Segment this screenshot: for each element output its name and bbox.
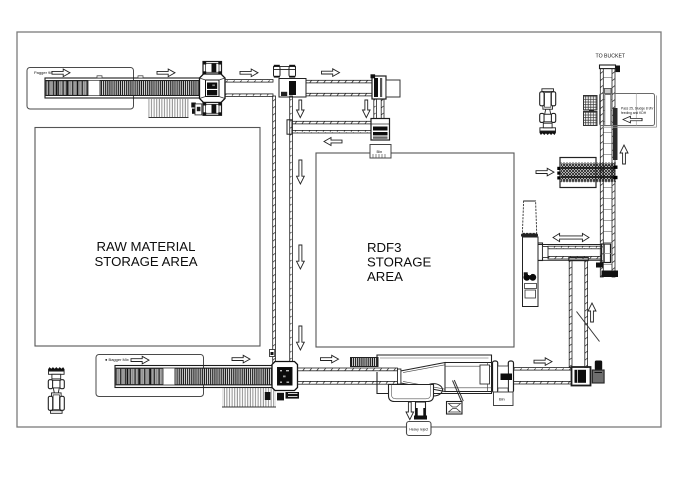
svg-text:STORAGE: STORAGE xyxy=(367,255,431,270)
svg-text:STORAGE AREA: STORAGE AREA xyxy=(94,254,197,269)
svg-text:Bin: Bin xyxy=(377,149,383,154)
svg-text:RDF3: RDF3 xyxy=(367,240,401,255)
svg-text:● Bagger Mix: ● Bagger Mix xyxy=(105,357,129,362)
svg-text:Bin: Bin xyxy=(499,397,505,402)
svg-text:feeding and KDH: feeding and KDH xyxy=(621,111,647,115)
svg-text:TO BUCKET: TO BUCKET xyxy=(596,54,626,60)
svg-text:AREA: AREA xyxy=(367,269,403,284)
svg-text:RAW MATERIAL: RAW MATERIAL xyxy=(97,239,196,254)
svg-text:Pass 25, Sludge 8 t/hr: Pass 25, Sludge 8 t/hr xyxy=(621,107,654,111)
svg-text:Heavy reject: Heavy reject xyxy=(409,427,428,431)
